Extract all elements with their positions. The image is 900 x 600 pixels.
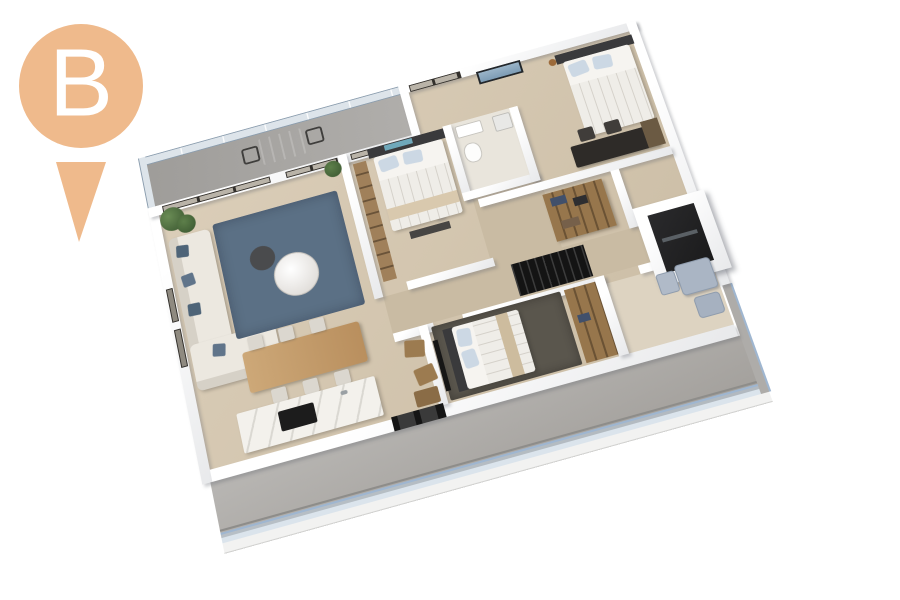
- floor-plan-scene: [119, 0, 756, 548]
- pin-pointer: [56, 162, 106, 242]
- bedroom3-chair-1: [404, 339, 425, 357]
- pin-label: B: [49, 29, 113, 136]
- sofa-pillow-4: [213, 343, 226, 357]
- bedroom3-pillow-1: [456, 327, 473, 347]
- sofa-pillow-3: [187, 302, 201, 317]
- pin-shape: B: [8, 12, 188, 258]
- floor-plan: [138, 21, 772, 555]
- location-pin[interactable]: B: [8, 12, 188, 258]
